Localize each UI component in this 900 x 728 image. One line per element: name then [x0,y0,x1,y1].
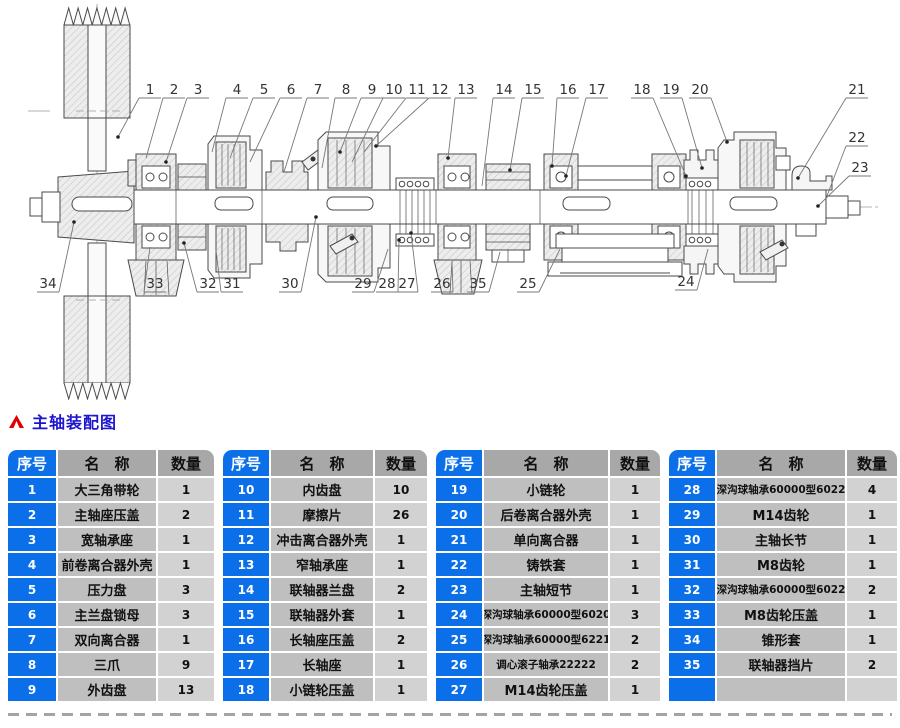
part-name: 联轴器挡片 [717,653,845,676]
part-no: 34 [669,628,715,651]
part-qty: 1 [847,553,897,576]
part-no: 3 [8,528,56,551]
callout-label: 13 [457,82,474,98]
part-name: 后卷离合器外壳 [484,503,608,526]
part-name: M14齿轮 [717,503,845,526]
callout-label: 2 [170,82,179,98]
part-qty: 1 [610,578,660,601]
part-name: 调心滚子轴承22222 [484,653,608,676]
callout-label: 29 [354,276,371,292]
callout-label: 33 [146,276,163,292]
part-name: 冲击离合器外壳 [271,528,373,551]
header-name: 名 称 [271,450,373,476]
callout-label: 31 [223,276,240,292]
part-qty: 2 [375,578,427,601]
callout-label: 35 [469,276,486,292]
callout-label: 7 [314,82,323,98]
part-qty: 1 [375,603,427,626]
callout-label: 24 [677,274,694,290]
part-no: 12 [223,528,269,551]
part-no: 18 [223,678,269,701]
part-no: 26 [436,653,482,676]
part-qty: 1 [847,628,897,651]
part-qty: 1 [375,678,427,701]
header-qty: 数量 [375,450,427,476]
section-title: 主轴装配图 [8,409,117,433]
page: 1234567891011121314151617181920212223343… [0,0,900,728]
part-qty: 2 [610,628,660,651]
part-no: 29 [669,503,715,526]
header-name: 名 称 [717,450,845,476]
part-name: 联轴器外套 [271,603,373,626]
part-no: 4 [8,553,56,576]
part-name: 摩擦片 [271,503,373,526]
main-shaft [134,190,860,224]
part-no: 32 [669,578,715,601]
part-name: 长轴座压盖 [271,628,373,651]
part-no: 13 [223,553,269,576]
part-no: 25 [436,628,482,651]
part-no: 23 [436,578,482,601]
part-no: 2 [8,503,56,526]
part-qty: 1 [158,553,214,576]
part-name: M8齿轮 [717,553,845,576]
header-qty: 数量 [610,450,660,476]
part-name: 压力盘 [58,578,156,601]
part-no: 1 [8,478,56,501]
narrow-bearing-seat [434,154,482,294]
parts-table-2: 序号名 称数量10内齿盘1011摩擦片2612冲击离合器外壳113窄轴承座114… [223,450,427,701]
part-name: 主轴座压盖 [58,503,156,526]
part-qty: 1 [375,528,427,551]
callout-label: 20 [691,82,708,98]
part-qty: 13 [158,678,214,701]
part-no: 19 [436,478,482,501]
callout-label: 23 [851,160,868,176]
callout-label: 8 [342,82,351,98]
part-qty: 1 [375,553,427,576]
part-qty: 1 [375,653,427,676]
callout-label: 32 [199,276,216,292]
part-qty: 2 [610,653,660,676]
header-qty: 数量 [847,450,897,476]
header-no: 序号 [436,450,482,476]
part-qty: 3 [158,578,214,601]
callout-label: 16 [559,82,576,98]
callout-label: 11 [408,82,425,98]
part-name: 三爪 [58,653,156,676]
callout-label: 19 [662,82,679,98]
part-name: 小链轮 [484,478,608,501]
part-no: 35 [669,653,715,676]
callout-label: 26 [433,276,450,292]
callout-label: 6 [287,82,296,98]
assembly-diagram-svg: 1234567891011121314151617181920212223343… [0,0,900,400]
part-qty: 1 [158,528,214,551]
part-name: 深沟球轴承60000型6020 [484,603,608,626]
part-name: 主轴短节 [484,578,608,601]
part-no: 30 [669,528,715,551]
part-qty: 26 [375,503,427,526]
part-qty: 4 [847,478,897,501]
part-qty: 1 [610,478,660,501]
part-qty: 1 [847,603,897,626]
part-name: 前卷离合器外壳 [58,553,156,576]
part-qty: 1 [158,478,214,501]
part-no: 31 [669,553,715,576]
callout-label: 14 [495,82,512,98]
parts-tables: 序号名 称数量1大三角带轮12主轴座压盖23宽轴承座14前卷离合器外壳15压力盘… [8,450,897,701]
part-name: 大三角带轮 [58,478,156,501]
callout-label: 30 [281,276,298,292]
part-name: 内齿盘 [271,478,373,501]
part-no: 10 [223,478,269,501]
part-qty: 1 [847,528,897,551]
part-name: 深沟球轴承60000型6221 [484,628,608,651]
part-no: 15 [223,603,269,626]
callout-label: 3 [194,82,203,98]
callout-label: 9 [368,82,377,98]
part-name: 外齿盘 [58,678,156,701]
part-qty: 1 [610,553,660,576]
part-name: 小链轮压盖 [271,678,373,701]
bottom-divider [8,713,892,716]
part-qty: 3 [610,603,660,626]
part-qty: 1 [610,678,660,701]
part-no: 24 [436,603,482,626]
part-no: 16 [223,628,269,651]
part-name: M14齿轮压盖 [484,678,608,701]
assembly-drawing: 1234567891011121314151617181920212223343… [0,0,900,400]
part-name: 主兰盘锁母 [58,603,156,626]
callout-label: 10 [385,82,402,98]
header-no: 序号 [223,450,269,476]
part-no: 20 [436,503,482,526]
header-qty: 数量 [158,450,214,476]
part-qty [847,678,897,701]
part-qty: 2 [847,653,897,676]
part-qty: 1 [158,628,214,651]
callout-label: 22 [848,130,865,146]
part-no: 5 [8,578,56,601]
callout-label: 1 [146,82,155,98]
callout-13: 13 [446,82,477,160]
callout-label: 15 [524,82,541,98]
part-name [717,678,845,701]
part-qty: 2 [375,628,427,651]
callout-label: 34 [39,276,56,292]
part-name: 主轴长节 [717,528,845,551]
part-qty: 2 [158,503,214,526]
part-no: 27 [436,678,482,701]
part-name: 联轴器兰盘 [271,578,373,601]
part-no: 14 [223,578,269,601]
part-name: 深沟球轴承60000型6022 [717,478,845,501]
header-no: 序号 [669,450,715,476]
part-no: 22 [436,553,482,576]
part-name: 铸铁套 [484,553,608,576]
parts-table-3: 序号名 称数量19小链轮120后卷离合器外壳121单向离合器122铸铁套123主… [436,450,660,701]
parts-table-1: 序号名 称数量1大三角带轮12主轴座压盖23宽轴承座14前卷离合器外壳15压力盘… [8,450,214,701]
part-name: 单向离合器 [484,528,608,551]
part-no: 21 [436,528,482,551]
part-name: 窄轴承座 [271,553,373,576]
part-name: 长轴座 [271,653,373,676]
callout-label: 25 [519,276,536,292]
part-qty: 1 [847,503,897,526]
header-no: 序号 [8,450,56,476]
part-qty: 10 [375,478,427,501]
callout-label: 27 [398,276,415,292]
part-name: 深沟球轴承60000型6022 [717,578,845,601]
callout-label: 21 [848,82,865,98]
callout-label: 12 [431,82,448,98]
callout-label: 28 [378,276,395,292]
callout-20: 20 [689,82,729,144]
part-qty: 1 [610,528,660,551]
callout-label: 5 [260,82,269,98]
callout-label: 18 [633,82,650,98]
red-caret-icon [8,414,25,429]
header-name: 名 称 [484,450,608,476]
part-qty: 9 [158,653,214,676]
wide-bearing-seat [128,154,184,296]
section-title-text: 主轴装配图 [32,409,117,433]
part-name: 锥形套 [717,628,845,651]
part-no: 8 [8,653,56,676]
part-qty: 3 [158,603,214,626]
part-no: 17 [223,653,269,676]
part-name: 双向离合器 [58,628,156,651]
part-no: 9 [8,678,56,701]
taper-sleeve [30,171,134,243]
callout-15: 15 [508,82,544,172]
part-no: 6 [8,603,56,626]
part-qty: 2 [847,578,897,601]
part-no [669,678,715,701]
part-no: 28 [669,478,715,501]
callout-label: 4 [233,82,242,98]
parts-table-4: 序号名 称数量28深沟球轴承60000型6022429M14齿轮130主轴长节1… [669,450,897,701]
part-qty: 1 [610,503,660,526]
part-no: 7 [8,628,56,651]
part-name: 宽轴承座 [58,528,156,551]
part-no: 33 [669,603,715,626]
part-name: M8齿轮压盖 [717,603,845,626]
callout-label: 17 [588,82,605,98]
header-name: 名 称 [58,450,156,476]
part-no: 11 [223,503,269,526]
